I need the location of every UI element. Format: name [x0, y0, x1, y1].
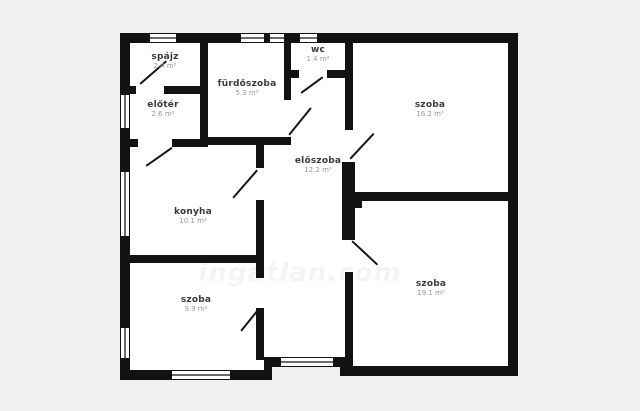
wall-pantry-bathroom: [200, 43, 208, 145]
room-label-pantry: spájz 2.4 m²: [151, 52, 178, 70]
room-name: fürdőszoba: [218, 79, 277, 89]
room-name: wc: [307, 45, 330, 55]
room-area: 19.1 m²: [416, 289, 446, 297]
room-name: szoba: [416, 279, 446, 289]
floor-area: [120, 33, 518, 370]
wall-bathroom-wc: [284, 43, 291, 100]
window-pane: [281, 361, 333, 363]
room-area: 1.4 m²: [307, 55, 330, 63]
wall-pantry-entry-b: [164, 86, 208, 94]
room-label-room-bottom-left: szoba 9.9 m²: [181, 295, 211, 313]
room-area: 2.4 m²: [151, 62, 178, 70]
wall-wc-room-right: [345, 43, 353, 130]
window-bottom-room: [172, 371, 230, 379]
room-label-wc: wc 1.4 m²: [307, 45, 330, 63]
wall-hall-room-right-upper: [342, 162, 355, 240]
room-area: 12.2 m²: [295, 166, 341, 174]
room-area: 9.9 m²: [181, 305, 211, 313]
wall-right-rooms-jamb: [355, 201, 362, 208]
window-pane: [241, 37, 264, 39]
window-pane: [172, 374, 230, 376]
window-pane: [124, 95, 126, 128]
wall-kitchen-hall-a: [256, 137, 264, 168]
wall-entry-kitchen-a: [130, 139, 138, 147]
wall-kitchen-hall-c: [256, 308, 264, 360]
window-top-pantry: [150, 34, 176, 42]
room-area: 16.2 m²: [415, 110, 445, 118]
window-pane: [300, 37, 317, 39]
room-name: spájz: [151, 52, 178, 62]
wall-right-rooms-divider: [353, 192, 508, 201]
floor-plan: ingatlan.com spájz 2.4 m² előtér 2.6 m² …: [0, 0, 640, 411]
room-area: 2.6 m²: [147, 110, 178, 118]
window-top-bathroom-1: [241, 34, 264, 42]
room-area: 5.3 m²: [218, 89, 277, 97]
wall-pantry-entry-a: [130, 86, 136, 94]
room-label-bathroom: fürdőszoba 5.3 m²: [218, 79, 277, 97]
window-left-entry: [121, 95, 129, 128]
outer-wall-step-left: [264, 357, 272, 380]
window-top-bathroom-2: [270, 34, 284, 42]
room-name: konyha: [174, 207, 212, 217]
wall-bathroom-bottom: [200, 137, 291, 145]
window-left-kitchen: [121, 172, 129, 236]
room-name: szoba: [181, 295, 211, 305]
room-label-kitchen: konyha 10.1 m²: [174, 207, 212, 225]
room-label-hallway: előszoba 12.2 m²: [295, 156, 341, 174]
window-pane: [124, 172, 126, 236]
room-name: előszoba: [295, 156, 341, 166]
watermark: ingatlan.com: [198, 258, 401, 288]
outer-wall-top: [120, 33, 518, 43]
room-name: előtér: [147, 100, 178, 110]
outer-wall-bottom-right: [340, 366, 518, 376]
window-pane: [150, 37, 176, 39]
window-bottom-hall: [281, 358, 333, 366]
outer-wall-right: [508, 33, 518, 376]
room-name: szoba: [415, 100, 445, 110]
room-label-entry: előtér 2.6 m²: [147, 100, 178, 118]
room-label-room-top-right: szoba 16.2 m²: [415, 100, 445, 118]
room-area: 10.1 m²: [174, 217, 212, 225]
window-pane: [124, 328, 126, 358]
room-label-room-bottom-right: szoba 19.1 m²: [416, 279, 446, 297]
window-top-wc: [300, 34, 317, 42]
wall-wc-bottom-a: [291, 70, 299, 78]
window-pane: [270, 37, 284, 39]
window-left-room: [121, 328, 129, 358]
